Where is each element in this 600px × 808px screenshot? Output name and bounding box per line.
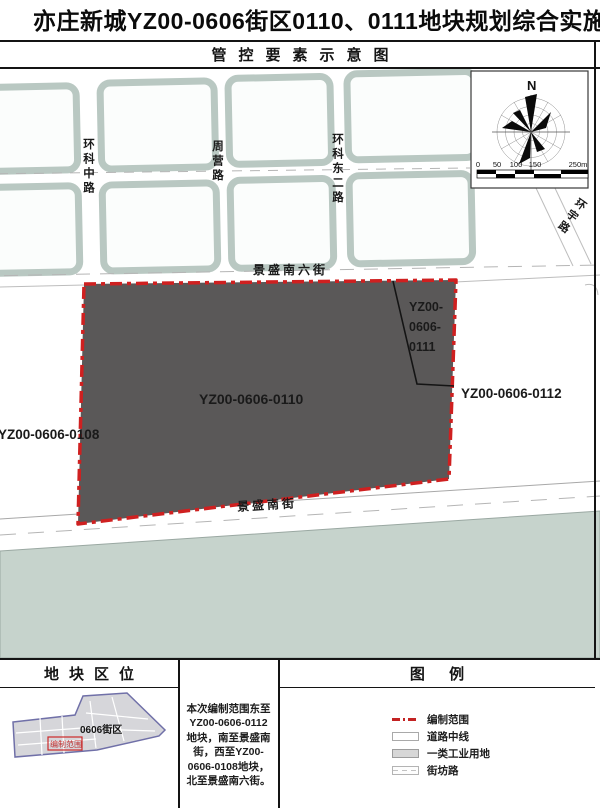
legend-item-industrial: 一类工业用地 (392, 748, 490, 759)
road-label-zhouying: 周营路 (209, 140, 225, 184)
parcel-0111-line2: 0606- (409, 317, 443, 337)
desc-line: 街，西至YZ00- (187, 745, 271, 760)
parcel-0111-line3: 0111 (409, 337, 443, 357)
parcel-label-0110: YZ00-0606-0110 (199, 391, 303, 407)
legend-item-scope: 编制范围 (392, 714, 490, 725)
scope-description: 本次编制范围东至 YZ00-0606-0112 地块，南至景盛南 街，西至YZ0… (187, 702, 271, 789)
location-title: 地块区位 (34, 663, 144, 684)
parcel-label-0108: YZ00-0606-0108 (0, 427, 99, 442)
scale-tick: 100 (510, 160, 523, 169)
legend-item-centerline: 道路中线 (392, 731, 490, 742)
desc-line: 本次编制范围东至 (187, 702, 271, 717)
scale-tick: 0 (476, 160, 480, 169)
legend-label: 道路中线 (427, 729, 469, 744)
road-label-huanke-east2: 环科东二路 (329, 133, 345, 206)
legend-header: 图 例 (280, 660, 595, 688)
scale-bar-ticks: 0 50 100 150 250m (476, 160, 587, 169)
parcel-label-0111: YZ00- 0606- 0111 (409, 297, 443, 357)
page-title: 亦庄新城YZ00-0606街区0110、0111地块规划综合实施方案 (33, 2, 600, 40)
legend-label: 编制范围 (427, 712, 469, 727)
desc-line: YZ00-0606-0112 (187, 716, 271, 731)
location-inset-map: 0606街区 编制范围 (0, 689, 178, 807)
scope-line-swatch (392, 715, 419, 724)
control-elements-map: N 0 50 100 (0, 69, 600, 658)
scope-rect-label: 编制范围 (50, 739, 82, 749)
footer-panel: 地块区位 0606街区 编制范围 本次编制范围东至 YZ00-0606-0112… (0, 658, 600, 808)
map-subtitle: 管控要素示意图 (17, 44, 584, 65)
legend-title: 图 例 (400, 663, 474, 684)
description-column: 本次编制范围东至 YZ00-0606-0112 地块，南至景盛南 街，西至YZ0… (179, 660, 278, 808)
parcel-label-0112: YZ00-0606-0112 (461, 386, 562, 401)
road-centerline-swatch (392, 732, 419, 741)
subtitle-bar: 管控要素示意图 (0, 40, 600, 69)
industrial-land-swatch (392, 749, 419, 758)
district-0606-label: 0606街区 (80, 723, 122, 736)
legend-label: 一类工业用地 (427, 746, 490, 761)
neighborhood-road-swatch (392, 766, 419, 775)
legend-label: 街坊路 (427, 763, 459, 778)
scale-bar (477, 170, 588, 178)
parcel-0111-line1: YZ00- (409, 297, 443, 317)
desc-line: 0606-0108地块， (187, 760, 271, 775)
scale-tick: 50 (493, 160, 501, 169)
road-label-huanke-middle: 环科中路 (80, 138, 96, 196)
scale-tick: 250m (569, 160, 588, 169)
desc-line: 北至景盛南六街。 (187, 774, 271, 789)
scale-tick: 150 (529, 160, 542, 169)
compass-scale-box: N 0 50 100 (471, 71, 588, 188)
legend-item-alley: 街坊路 (392, 765, 490, 776)
desc-line: 地块，南至景盛南 (187, 731, 271, 746)
north-label: N (527, 78, 536, 93)
road-label-jingsheng-south6: 景盛南六街 (253, 261, 328, 278)
location-header: 地块区位 (0, 660, 178, 688)
legend-list: 编制范围 道路中线 一类工业用地 街坊路 (392, 714, 490, 782)
